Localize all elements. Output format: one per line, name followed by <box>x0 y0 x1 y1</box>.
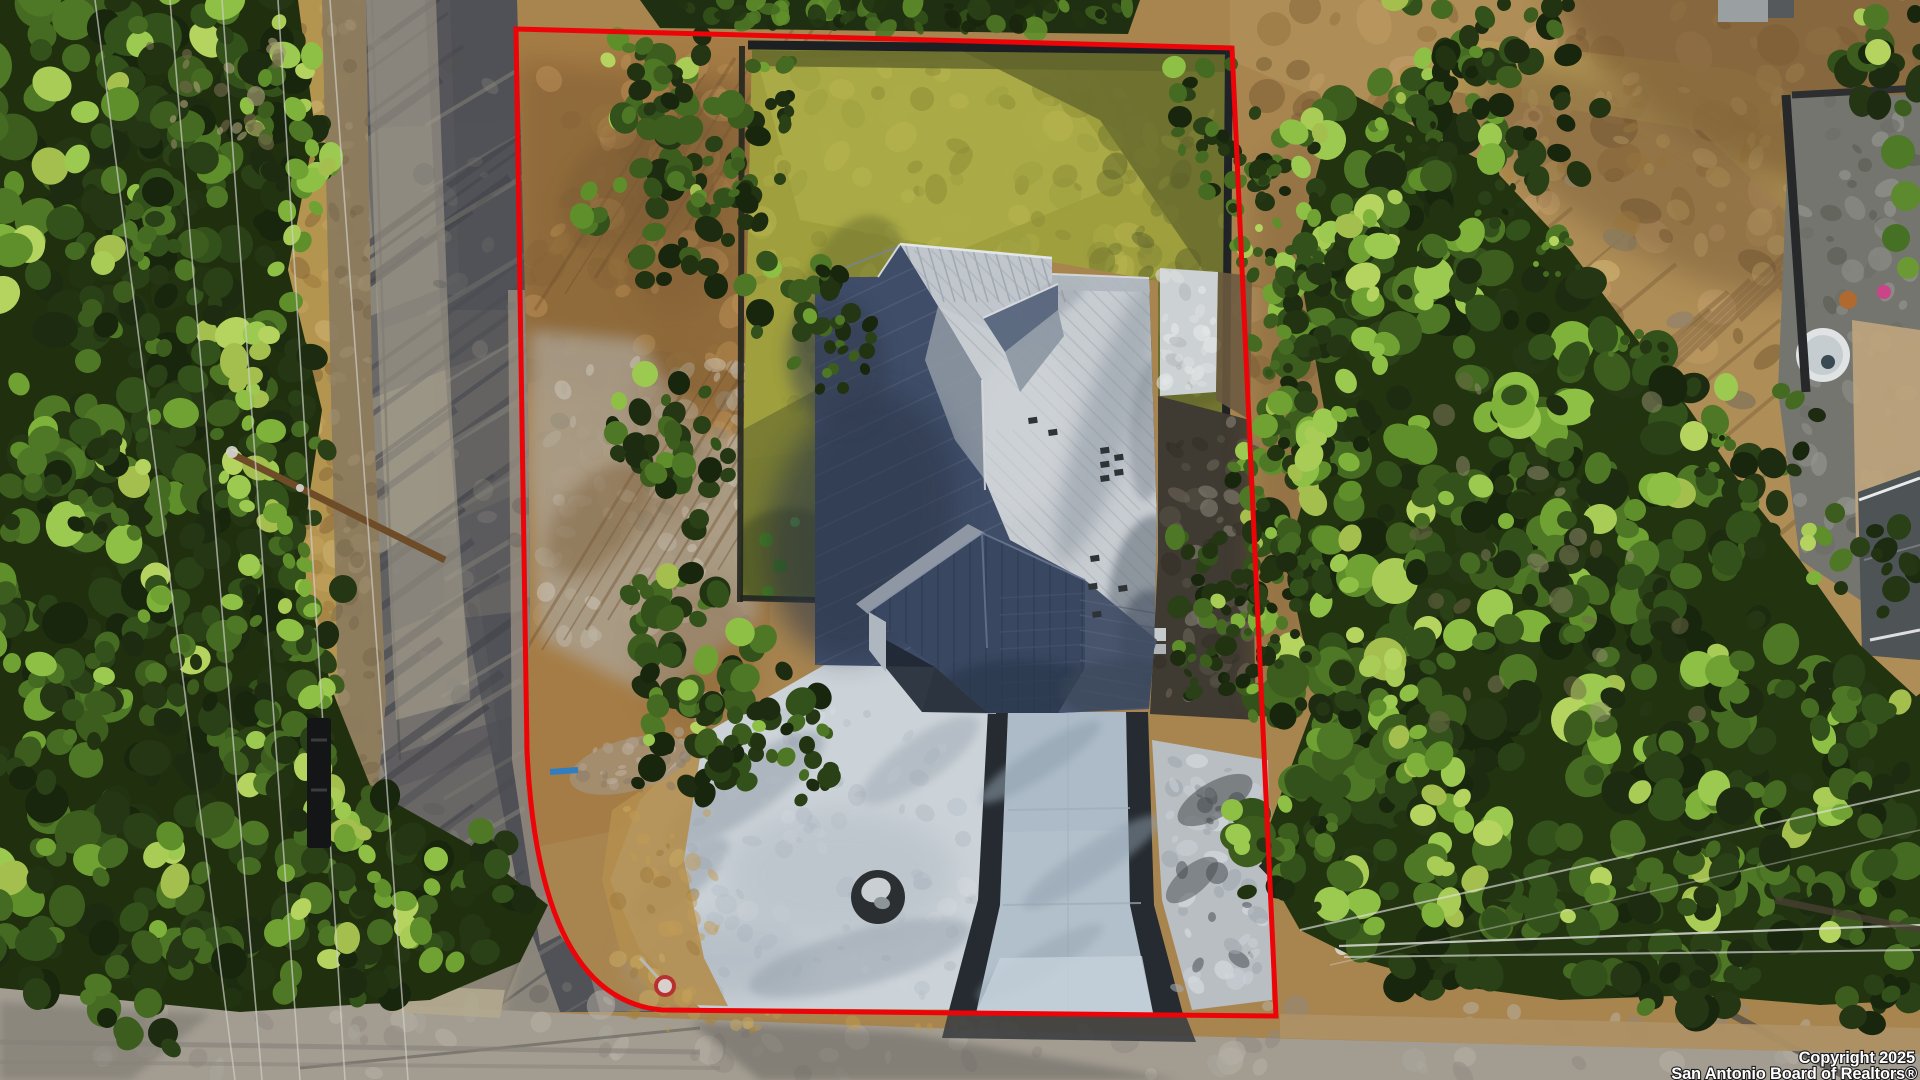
svg-text:San Antonio Board of Realtors®: San Antonio Board of Realtors® <box>1671 1065 1917 1080</box>
